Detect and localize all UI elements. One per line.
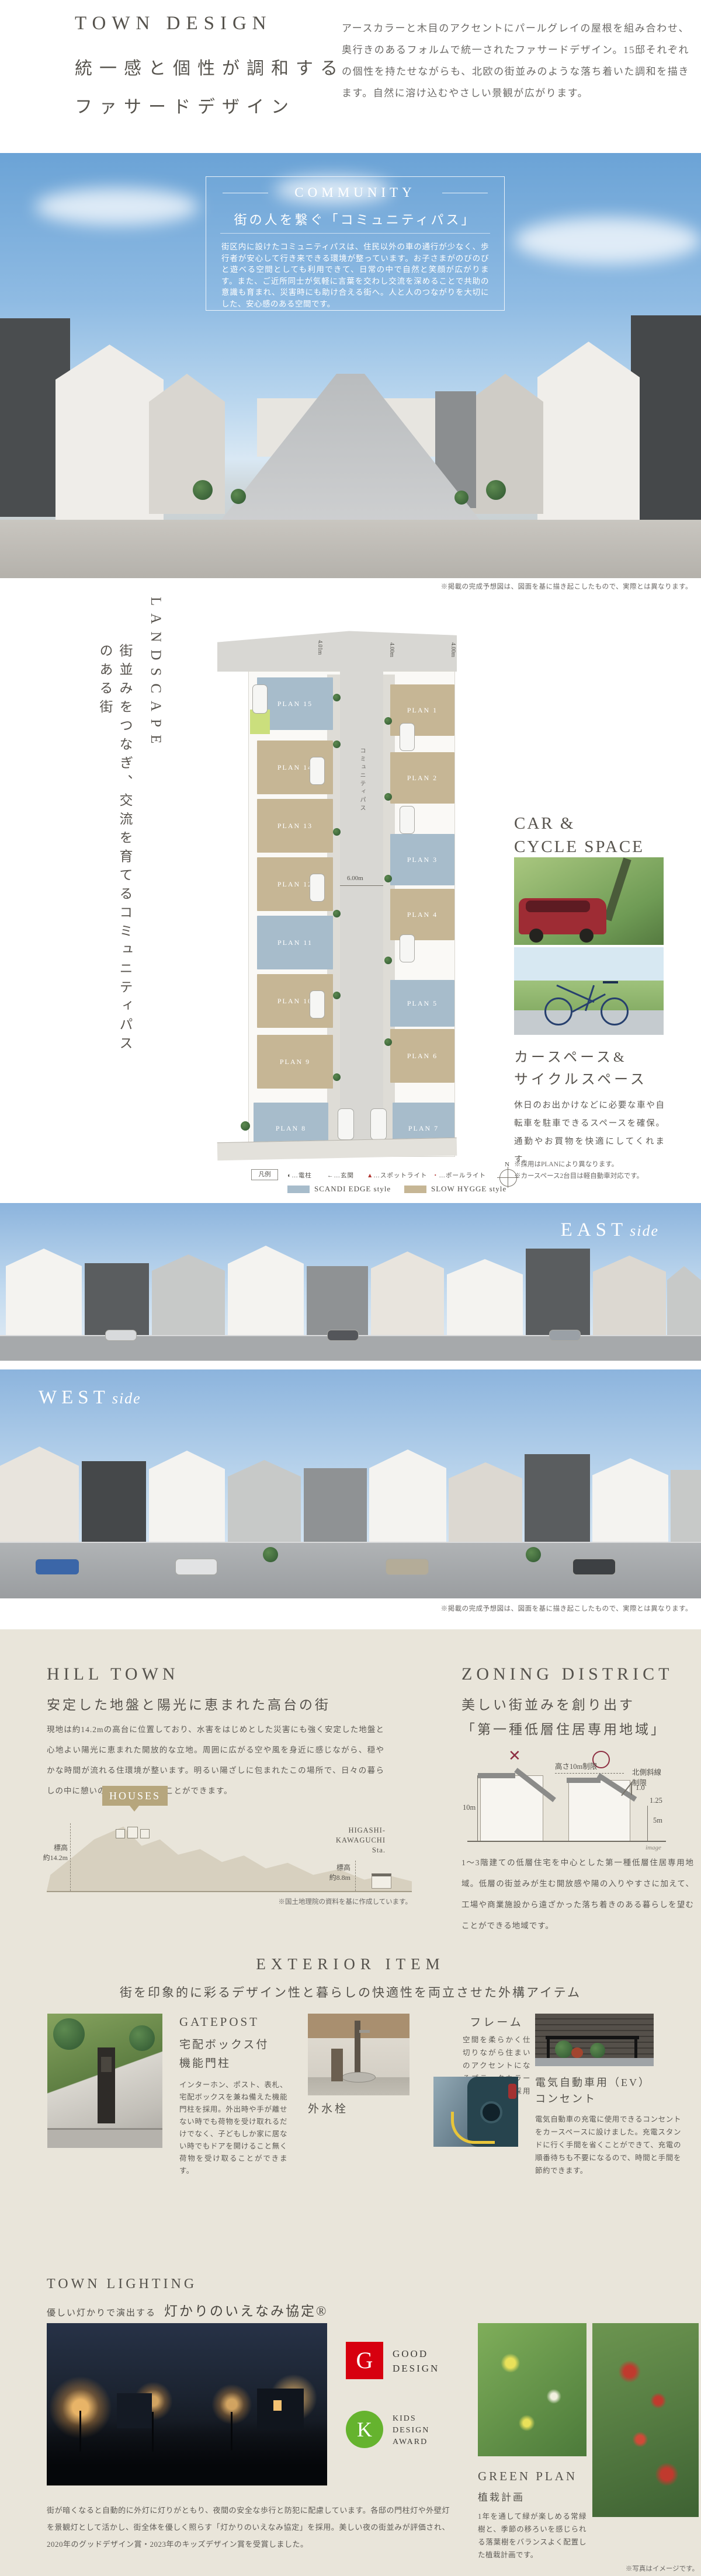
green-plan-body: 1年を通して緑が楽しめる常緑樹と、季節の移ろいを感じられる落葉樹をバランスよく配…	[478, 2510, 587, 2561]
zoning-subheading-2: 「第一種低層住居専用地域」	[461, 1718, 667, 1738]
measure-6-00: 6.00m	[347, 875, 363, 882]
map-car	[400, 723, 415, 751]
house-silhouette	[371, 1252, 444, 1336]
ng-mark: ✕	[508, 1747, 521, 1765]
map-car	[400, 934, 415, 962]
house-silhouette	[85, 1263, 149, 1336]
elevation-right-label: 標高 約8.8m	[317, 1863, 350, 1883]
legend-chip-scandi	[287, 1186, 310, 1193]
map-car	[338, 1108, 354, 1140]
elevation-line-right	[355, 1861, 356, 1891]
ev-title: 電気自動車用（EV） コンセント	[535, 2074, 651, 2107]
legend-item-pole: ◐…電柱	[287, 1171, 312, 1180]
bush	[486, 480, 506, 500]
map-tree	[333, 1073, 341, 1081]
legend-hygge-label: SLOW HYGGE style	[431, 1184, 506, 1194]
west-label: WEST side	[39, 1387, 141, 1409]
exterior-subheading: 街を印象的に彩るデザイン性と暮らしの快適性を両立させた外構アイテム	[0, 1983, 701, 2001]
parked-car	[327, 1330, 359, 1341]
hill-house-icon	[116, 1829, 125, 1838]
roof-slab	[478, 1773, 515, 1778]
cycle-space-photo	[514, 947, 664, 1035]
map-tree	[384, 1038, 392, 1046]
green-plan-photo-2	[592, 2323, 699, 2517]
ev-body: 電気自動車の充電に使用できるコンセントをカースペースに設けました。充電スタンドに…	[535, 2113, 681, 2177]
water-tap-photo	[308, 2014, 410, 2095]
west-elevation: WEST side	[0, 1369, 701, 1598]
hill-footnote: ※国土地理院の資料を基に作成しています。	[178, 1897, 412, 1906]
page-title: TOWN DESIGN	[75, 13, 272, 34]
gatepost-subtitle: 宅配ボックス付 機能門柱	[179, 2036, 269, 2073]
map-tree	[384, 875, 392, 882]
house-silhouette	[228, 1246, 304, 1336]
exterior-heading: EXTERIOR ITEM	[0, 1955, 701, 1973]
map-tree	[333, 741, 341, 748]
map-car	[310, 757, 325, 785]
good-design-label: GOOD DESIGN	[393, 2346, 439, 2376]
green-plan-subtitle: 植栽計画	[478, 2489, 525, 2504]
height-limit-label: 高さ10m制限	[555, 1760, 597, 1771]
map-tree	[333, 992, 341, 999]
map-plot-9: PLAN 9	[257, 1035, 333, 1089]
car-cycle-title: カースペース& サイクルスペース	[514, 1047, 647, 1091]
slope-ratio-line	[631, 1782, 632, 1795]
map-plot-6: PLAN 6	[390, 1029, 454, 1083]
hill-diagram: HOUSES 標高 約14.2m 標高 約8.8m HIGASHI- KAWAG…	[47, 1775, 412, 1899]
house-silhouette	[671, 1470, 701, 1543]
page-subtitle-2: ファサードデザイン	[75, 92, 296, 118]
measure-4-00b: 4.00m	[450, 642, 456, 657]
town-lighting-subheading: 優しい灯かりで演出する 灯かりのいえなみ協定®	[47, 2300, 328, 2320]
kids-design-label: KIDS DESIGN AWARD	[393, 2413, 429, 2448]
landscape-vertical-copy: 街並みをつなぎ、交流を育てるコミュニティパスのある街	[95, 644, 134, 1058]
map-tree	[384, 957, 392, 964]
elevation-left-label: 標高 約14.2m	[34, 1843, 68, 1863]
east-elevation: EAST side	[0, 1203, 701, 1361]
green-plan-note: ※写真はイメージです。	[523, 2564, 699, 2573]
map-plot-2: PLAN 2	[390, 752, 454, 804]
house-silhouette	[526, 1249, 590, 1336]
zoning-body: 1～3階建ての低層住宅を中心とした第一種低層住居専用地域。低層の街並みが生む開放…	[461, 1852, 694, 1937]
map-plot-5: PLAN 5	[390, 980, 454, 1027]
map-tree	[384, 793, 392, 801]
map-car	[310, 874, 325, 902]
zoning-diagram: ✕ 10m 高さ10m制限 北側斜線 制限 1.0 1.25 5m image	[461, 1746, 695, 1848]
town-lighting-body: 街が暗くなると自動的に外灯に灯りがともり、夜間の安全な歩行と防犯に配慮しています…	[47, 2502, 450, 2553]
north-road	[217, 628, 457, 672]
gatepost-photo	[47, 2014, 162, 2148]
map-plot-3: PLAN 3	[390, 834, 454, 885]
station-icon	[372, 1873, 391, 1889]
measure-4-00a: 4.00m	[388, 642, 395, 657]
house-silhouette	[592, 1458, 668, 1543]
house-silhouette	[307, 1266, 368, 1336]
house-silhouette	[369, 1449, 446, 1543]
intro-paragraph: アースカラーと木目のアクセントにパールグレイの屋根を組み合わせ、奥行きのあるフォ…	[342, 18, 689, 104]
community-subheading: 街の人を繋ぐ「コミュニティパス」	[206, 210, 504, 228]
map-tree	[333, 910, 341, 917]
map-tree	[333, 828, 341, 836]
measure-line	[477, 1775, 478, 1841]
car-cycle-heading: CAR & CYCLE SPACE	[514, 812, 644, 858]
ground-line	[47, 1891, 412, 1892]
render-caption-2: ※掲載の完成予想図は、図面を基に描き起こしたもので、実際とは異なります。	[342, 1604, 692, 1613]
green-plan-photo-1	[478, 2323, 587, 2456]
parked-car	[35, 1559, 79, 1575]
divider	[220, 233, 490, 234]
legend-scandi-label: SCANDI EDGE style	[314, 1184, 391, 1194]
community-hero: COMMUNITY 街の人を繋ぐ「コミュニティパス」 街区内に設けたコミュニティ…	[0, 153, 701, 578]
map-car	[310, 990, 325, 1018]
render-caption: ※掲載の完成予想図は、図面を基に描き起こしたもので、実際とは異なります。	[342, 582, 692, 591]
ev-outlet-photo	[433, 2077, 518, 2147]
hill-town-subheading: 安定した地盤と陽光に恵まれた高台の街	[47, 1694, 331, 1713]
pavement	[0, 520, 701, 578]
kids-design-logo-icon: K	[346, 2411, 383, 2448]
map-plot-11: PLAN 11	[257, 916, 333, 969]
zoning-10m: 10m	[463, 1803, 476, 1812]
station-label: HIGASHI- KAWAGUCHI Sta.	[292, 1826, 386, 1855]
zoning-ground	[467, 1841, 666, 1842]
bush	[193, 480, 213, 500]
bush	[526, 1547, 541, 1562]
map-tree	[241, 1121, 250, 1131]
house-silhouette	[631, 315, 701, 520]
map-tree	[333, 694, 341, 701]
map-plot-4: PLAN 4	[390, 889, 454, 940]
landscape-heading: LANDSCAPE	[147, 597, 164, 749]
house-silhouette	[667, 1266, 701, 1336]
hill-house-icon	[140, 1829, 150, 1838]
parked-car	[105, 1330, 137, 1341]
house-silhouette	[449, 1462, 522, 1543]
bush	[454, 491, 469, 505]
legend-title-box: 凡例	[251, 1169, 278, 1180]
bush	[231, 489, 246, 504]
green-plan-title: GREEN PLAN	[478, 2469, 577, 2484]
parked-car	[549, 1330, 581, 1341]
page-subtitle-1: 統一感と個性が調和する	[75, 54, 345, 79]
house-silhouette	[82, 1461, 146, 1543]
legend-item-spotlight: ▲…スポットライト	[367, 1171, 427, 1180]
zoning-subheading-1: 美しい街並みを創り出す	[461, 1694, 635, 1713]
house-silhouette	[228, 1460, 301, 1543]
parked-car	[386, 1559, 429, 1575]
house-silhouette	[593, 1256, 666, 1336]
elevation-line-left	[70, 1823, 71, 1891]
parked-car	[175, 1559, 217, 1575]
height-limit-line	[555, 1773, 624, 1774]
hill-town-heading: HILL TOWN	[47, 1664, 179, 1684]
image-note: image	[646, 1844, 661, 1851]
community-heading: COMMUNITY	[206, 185, 504, 200]
house-silhouette	[525, 1454, 590, 1543]
gatepost-title: GATEPOST	[179, 2015, 259, 2029]
frame-title: フレーム	[463, 2014, 530, 2029]
legend-item-entrance: ←…玄関	[327, 1171, 354, 1180]
map-car	[370, 1108, 387, 1140]
car-space-photo	[514, 857, 664, 945]
ratio-1-25: 1.25	[650, 1796, 662, 1805]
community-path	[340, 670, 383, 1143]
bush	[263, 1547, 278, 1562]
frame-photo	[535, 2014, 654, 2066]
house-silhouette	[447, 1259, 523, 1336]
map-car	[400, 806, 415, 834]
house-silhouette	[537, 342, 640, 520]
bubble-pointer	[130, 1806, 139, 1812]
house-silhouette	[0, 1447, 79, 1543]
car-cycle-note2: ※カースペース2台目は軽自動車対応です。	[514, 1170, 643, 1182]
path-label: コミュニティパス	[358, 748, 366, 813]
cloud	[35, 188, 199, 225]
houses-bubble: HOUSES	[102, 1786, 168, 1806]
community-text-box: COMMUNITY 街の人を繋ぐ「コミュニティパス」 街区内に設けたコミュニティ…	[206, 176, 505, 311]
measure-line	[340, 885, 383, 886]
legend-chip-hygge	[404, 1186, 426, 1193]
house-silhouette	[149, 1451, 225, 1543]
east-label: EAST side	[561, 1219, 659, 1241]
legend-item-polelight: ・…ポールライト	[432, 1171, 486, 1180]
house-silhouette	[6, 1249, 82, 1336]
house-silhouette	[55, 345, 164, 520]
parked-car	[572, 1559, 616, 1575]
site-plan-map: 4.01m 4.00m 4.00m ごみ集積所 コミュニティパス 6.00m P…	[217, 619, 457, 1162]
house-silhouette	[152, 1254, 225, 1336]
house-silhouette	[149, 374, 225, 514]
hill-house-icon	[127, 1827, 138, 1838]
map-tree	[384, 717, 392, 725]
community-body: 街区内に設けたコミュニティパスは、住民以外の車の通行が少なく、歩行者が安心して行…	[221, 241, 489, 310]
map-car	[252, 684, 268, 714]
measure-4-01: 4.01m	[317, 640, 323, 655]
ratio-1-0: 1.0	[636, 1784, 645, 1792]
cloud	[514, 217, 701, 264]
water-tap-title: 外水栓	[308, 2100, 348, 2116]
night-street-photo	[47, 2323, 327, 2485]
roof-slab	[567, 1778, 601, 1783]
town-lighting-heading: TOWN LIGHTING	[47, 2276, 197, 2292]
house-silhouette	[304, 1468, 367, 1543]
measure-line	[647, 1806, 648, 1841]
good-design-logo-icon: G	[346, 2342, 383, 2379]
zoning-heading: ZONING DISTRICT	[461, 1664, 673, 1684]
zoning-5m: 5m	[653, 1816, 662, 1825]
car-cycle-note1: ※採用はPLANにより異なります。	[514, 1159, 618, 1170]
map-plot-13: PLAN 13	[257, 799, 333, 853]
gatepost-body: インターホン、ポスト、表札、宅配ボックスを兼ね備えた機能門柱を採用。外出時や手が…	[179, 2079, 287, 2177]
